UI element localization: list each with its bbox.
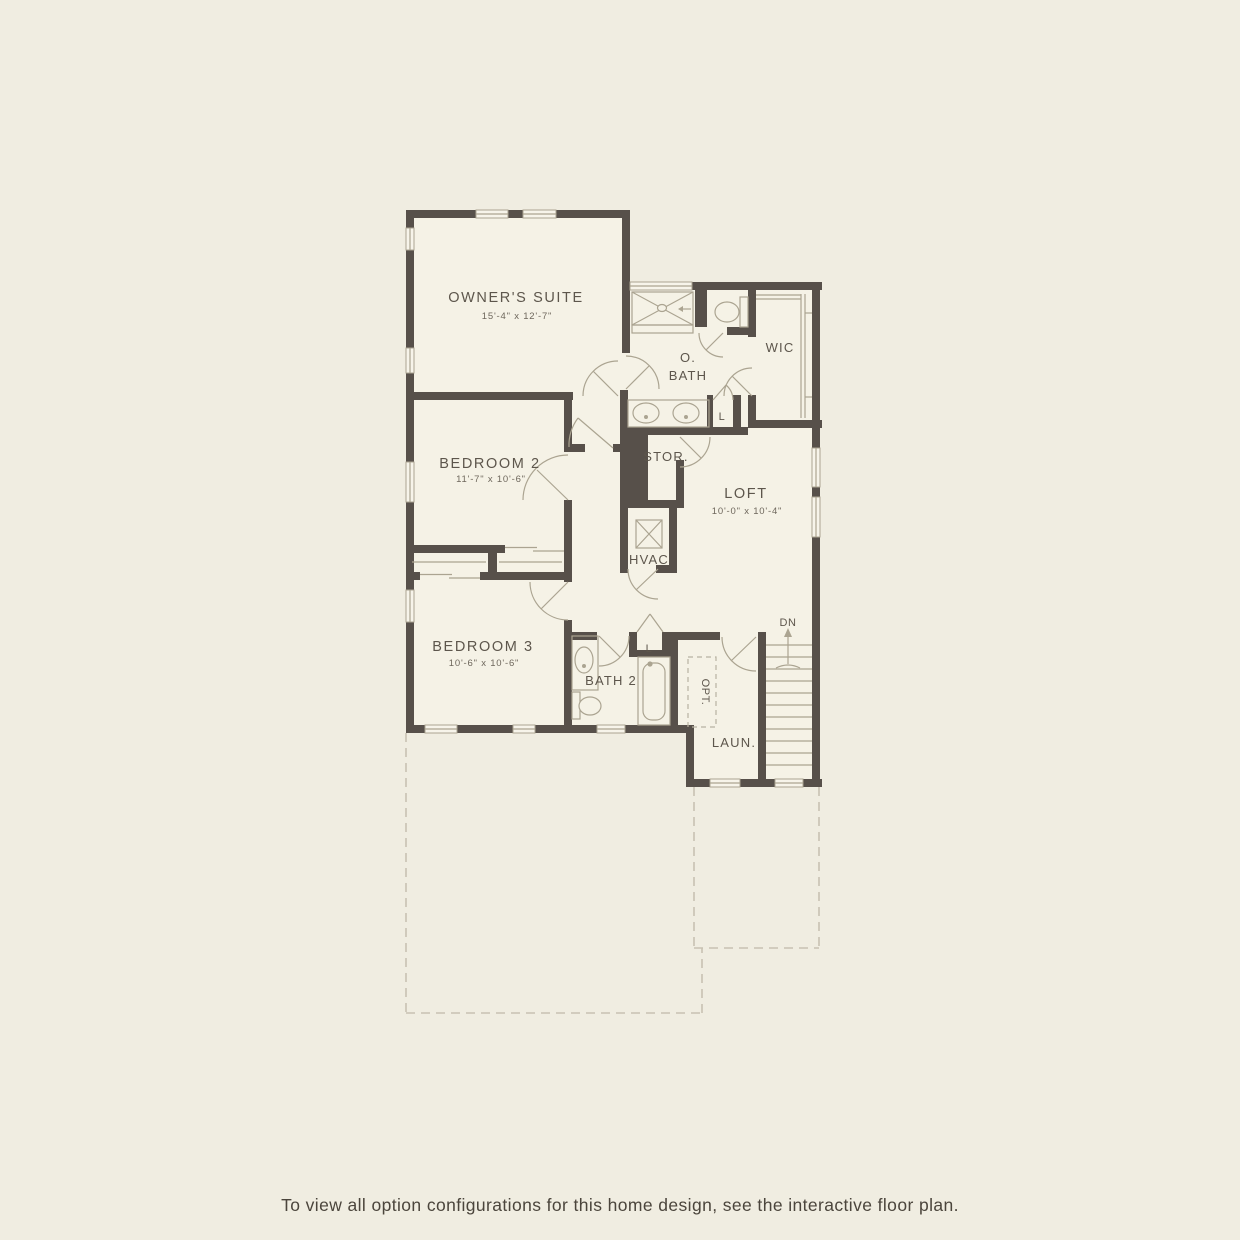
window bbox=[425, 725, 457, 733]
window bbox=[812, 448, 820, 487]
floor-plan-page: OWNER'S SUITE 15'-4" x 12'-7" BEDROOM 2 … bbox=[0, 0, 1240, 1240]
bedroom3-label: BEDROOM 3 bbox=[432, 639, 533, 655]
owners-suite-dims: 15'-4" x 12'-7" bbox=[482, 311, 552, 322]
owners-bath-label-line2: BATH bbox=[669, 368, 708, 383]
owners-bath-label-line1: O. bbox=[680, 350, 696, 365]
wic-label: WIC bbox=[766, 340, 795, 355]
window bbox=[630, 282, 692, 290]
window bbox=[710, 779, 740, 787]
window bbox=[406, 348, 414, 373]
loft-dims: 10'-0" x 10'-4" bbox=[712, 506, 782, 517]
window bbox=[476, 210, 508, 218]
linen-hall-label: L bbox=[646, 643, 653, 655]
window bbox=[812, 497, 820, 537]
bedroom3-dims: 10'-6" x 10'-6" bbox=[449, 658, 519, 669]
bedroom2-dims: 11'-7" x 10'-6" bbox=[456, 474, 526, 485]
window bbox=[775, 779, 803, 787]
laundry-label: LAUN. bbox=[712, 735, 756, 750]
window bbox=[523, 210, 556, 218]
window bbox=[513, 725, 535, 733]
owners-suite-label: OWNER'S SUITE bbox=[448, 290, 584, 306]
floor-plan-drawing: OWNER'S SUITE 15'-4" x 12'-7" BEDROOM 2 … bbox=[0, 0, 1240, 1240]
window bbox=[406, 462, 414, 502]
storage-label: STOR. bbox=[643, 449, 689, 464]
linen-bath-label: L bbox=[719, 411, 726, 423]
stairs-down-label: DN bbox=[779, 617, 796, 629]
window bbox=[406, 228, 414, 250]
bath2-label: BATH 2 bbox=[585, 673, 637, 688]
bedroom2-label: BEDROOM 2 bbox=[439, 456, 540, 472]
window bbox=[597, 725, 625, 733]
optional-label: OPT. bbox=[699, 679, 711, 706]
footer-note: To view all option configurations for th… bbox=[0, 1195, 1240, 1216]
hvac-label: HVAC bbox=[629, 552, 669, 567]
loft-label: LOFT bbox=[724, 486, 767, 502]
window bbox=[406, 590, 414, 622]
